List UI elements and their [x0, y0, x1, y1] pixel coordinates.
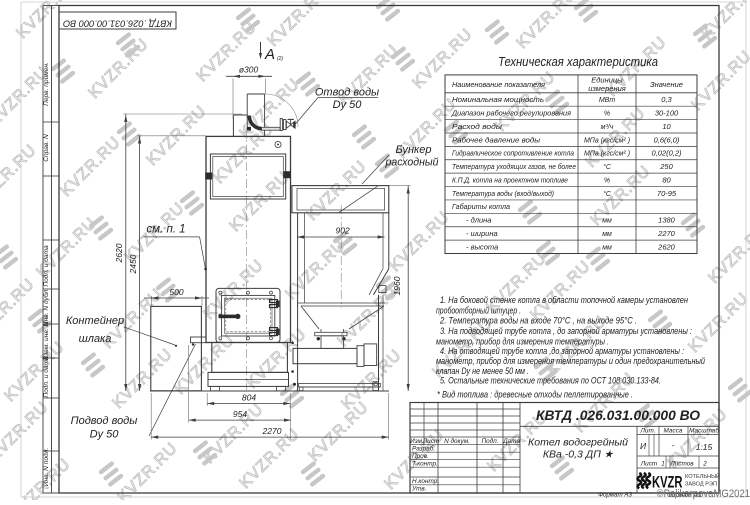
svg-text:* Вид топлива : древесные отх: * Вид топлива : древесные отходы пеллети…	[437, 389, 633, 399]
svg-text:Гидравлическое сопротивление к: Гидравлическое сопротивление котла	[452, 149, 574, 158]
svg-text:1960: 1960	[392, 276, 402, 295]
svg-text:Dy 50: Dy 50	[333, 99, 363, 111]
svg-text:Подп.: Подп.	[481, 437, 498, 445]
svg-text:Изм.: Изм.	[410, 438, 424, 445]
svg-text:МПа (кгс/см² ): МПа (кгс/см² )	[584, 137, 630, 144]
svg-text:см. п. 1: см. п. 1	[146, 224, 185, 236]
svg-text:Масса: Масса	[664, 428, 683, 435]
svg-text:Инв. N дубл.: Инв. N дубл.	[42, 288, 50, 326]
svg-text:МВт: МВт	[599, 97, 616, 104]
svg-text:м³/ч: м³/ч	[601, 124, 614, 131]
svg-text:- ширина: - ширина	[466, 229, 498, 238]
svg-text:©PolikarpovaMG2021: ©PolikarpovaMG2021	[657, 488, 750, 500]
svg-text:2: 2	[702, 461, 707, 468]
svg-text:Формат А3: Формат А3	[598, 492, 632, 499]
svg-text:10: 10	[662, 122, 671, 131]
svg-text:°С: °С	[603, 190, 612, 198]
svg-text:0,6(6,0): 0,6(6,0)	[654, 135, 680, 144]
svg-text:Температура уходящих газов, не: Температура уходящих газов, не более	[452, 162, 576, 171]
svg-text:Подвод воды: Подвод воды	[71, 415, 138, 427]
svg-text:Н.контр.: Н.контр.	[412, 478, 439, 485]
svg-text:Температура воды (вход/выход): Температура воды (вход/выход)	[452, 189, 554, 198]
svg-text:2270: 2270	[657, 229, 676, 238]
svg-text:1: 1	[661, 461, 665, 468]
svg-text:клапан Dу не менее 50 мм .: клапан Dу не менее 50 мм .	[436, 366, 529, 376]
svg-text:- длина: - длина	[466, 216, 491, 225]
svg-text:ø300: ø300	[239, 65, 259, 75]
svg-text:Контейнер: Контейнер	[66, 315, 124, 327]
svg-text:К.П.Д. котла на проектном топл: К.П.Д. котла на проектном топливе	[452, 175, 568, 184]
svg-text:(2): (2)	[277, 56, 283, 62]
svg-text:пробоотборный штуцер .: пробоотборный штуцер .	[436, 306, 521, 316]
svg-text:5. Остальные технические треб: 5. Остальные технические требования по О…	[440, 376, 661, 386]
svg-text:Номинальная мощность: Номинальная мощность	[452, 95, 544, 104]
svg-text:Масштаб: Масштаб	[689, 427, 719, 435]
svg-text:%: %	[604, 110, 610, 117]
svg-text:ЗАВОД РЭП: ЗАВОД РЭП	[685, 482, 717, 488]
svg-text:измерения: измерения	[588, 84, 626, 93]
svg-text:КВТД .026.031.00.000 ВО: КВТД .026.031.00.000 ВО	[63, 19, 172, 29]
svg-text:Габариты котла: Габариты котла	[452, 202, 510, 211]
svg-text:Отвод воды: Отвод воды	[315, 87, 379, 99]
svg-text:Взам. инв. N: Взам. инв. N	[43, 322, 50, 361]
svg-text:Листов: Листов	[669, 461, 694, 468]
svg-text:2450: 2450	[128, 254, 138, 274]
svg-text:И: И	[640, 441, 647, 451]
svg-text:250: 250	[659, 162, 673, 171]
svg-text:N докум.: N докум.	[444, 437, 470, 445]
svg-text:70-95: 70-95	[657, 189, 677, 198]
svg-text:2. Температура воды на входе: 2. Температура воды на входе 70°С , на в…	[439, 315, 637, 325]
svg-text:Техническая характеристика: Техническая характеристика	[498, 54, 658, 69]
svg-text:Значение: Значение	[650, 80, 683, 89]
svg-text:%: %	[604, 177, 610, 184]
svg-text:Пров.: Пров.	[412, 453, 429, 460]
svg-text:1. На боковой стенке котла в: 1. На боковой стенке котла в области топ…	[440, 295, 688, 305]
svg-text:мм: мм	[602, 218, 612, 225]
svg-text:2620: 2620	[114, 243, 124, 263]
svg-text:Утв.: Утв.	[411, 486, 427, 493]
svg-text:- высота: - высота	[466, 242, 498, 251]
svg-text:Лит.: Лит.	[640, 428, 656, 435]
svg-text:°С: °С	[603, 163, 612, 171]
svg-text:A: A	[264, 46, 275, 63]
svg-text:Подп. и дата: Подп. и дата	[42, 356, 50, 398]
svg-text:манометр, прибор для измерения: манометр, прибор для измерения температу…	[436, 356, 705, 366]
svg-text:1380: 1380	[658, 216, 676, 225]
svg-text:-: -	[672, 440, 675, 450]
svg-text:Рабочее давление воды: Рабочее давление воды	[452, 135, 540, 144]
svg-text:Разраб.: Разраб.	[412, 445, 435, 453]
svg-text:Лист: Лист	[640, 461, 658, 468]
svg-text:Инв. N подл.: Инв. N подл.	[42, 448, 50, 487]
svg-text:Бункер: Бункер	[396, 144, 432, 156]
svg-text:КОТЕЛЬНЫЙ: КОТЕЛЬНЫЙ	[685, 472, 720, 480]
svg-text:манометр, прибор для измерения: манометр, прибор для измерения температу…	[436, 336, 609, 346]
svg-text:мм: мм	[602, 231, 612, 238]
svg-text:Расход воды: Расход воды	[452, 122, 503, 131]
svg-text:Подп. и дата: Подп. и дата	[42, 245, 50, 287]
svg-text:КВа -0,3 ДП ★: КВа -0,3 ДП ★	[543, 449, 614, 461]
svg-text:4. На отводящей трубе котла ,: 4. На отводящей трубе котла ,до запорной…	[440, 346, 684, 356]
svg-text:Наименование показателя: Наименование показателя	[452, 80, 545, 89]
svg-text:Котел водогрейный: Котел водогрейный	[528, 437, 628, 449]
svg-text:804: 804	[242, 393, 256, 403]
svg-text:954: 954	[233, 409, 247, 419]
svg-text:расходный: расходный	[385, 157, 439, 169]
svg-text:902: 902	[336, 226, 350, 236]
svg-text:Диапазон рабочего регулировани: Диапазон рабочего регулирования	[451, 108, 571, 117]
svg-text:1:15: 1:15	[696, 442, 713, 452]
svg-text:Перв. примен.: Перв. примен.	[43, 62, 50, 106]
svg-text:Справ. N: Справ. N	[43, 134, 50, 162]
svg-text:500: 500	[169, 287, 183, 297]
svg-text:80: 80	[662, 175, 671, 184]
svg-text:2620: 2620	[657, 242, 676, 251]
svg-text:КВТД .026.031.00.000 ВО: КВТД .026.031.00.000 ВО	[536, 408, 701, 423]
svg-text:Лист: Лист	[422, 438, 440, 445]
svg-text:МПа (кгс/см² ): МПа (кгс/см² )	[584, 151, 630, 158]
svg-text:2270: 2270	[262, 426, 282, 436]
svg-text:0,3: 0,3	[661, 95, 672, 104]
svg-text:Т.контр.: Т.контр.	[412, 461, 438, 468]
svg-text:шлака: шлака	[79, 333, 112, 345]
svg-text:мм: мм	[602, 244, 612, 251]
svg-text:Дата: Дата	[502, 438, 520, 445]
svg-text:0,02(0,2): 0,02(0,2)	[651, 149, 682, 158]
svg-text:Dy 50: Dy 50	[90, 429, 120, 441]
svg-text:30-100: 30-100	[655, 108, 679, 117]
svg-text:3. На подводящей трубе котла: 3. На подводящей трубе котла , до запорн…	[440, 326, 692, 336]
